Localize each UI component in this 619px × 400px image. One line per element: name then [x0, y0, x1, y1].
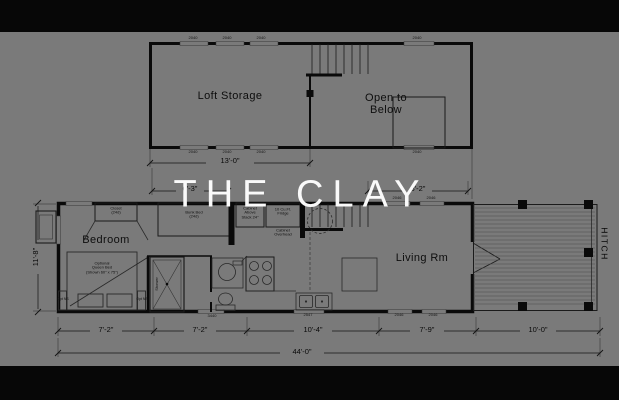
letterbox-bar-top	[0, 0, 619, 32]
floor-plan-hero: Loft Storage Open to Below Bedroom Livin…	[0, 0, 619, 400]
letterbox-bar-bottom	[0, 366, 619, 400]
plan-title: THE CLAY	[173, 174, 428, 217]
